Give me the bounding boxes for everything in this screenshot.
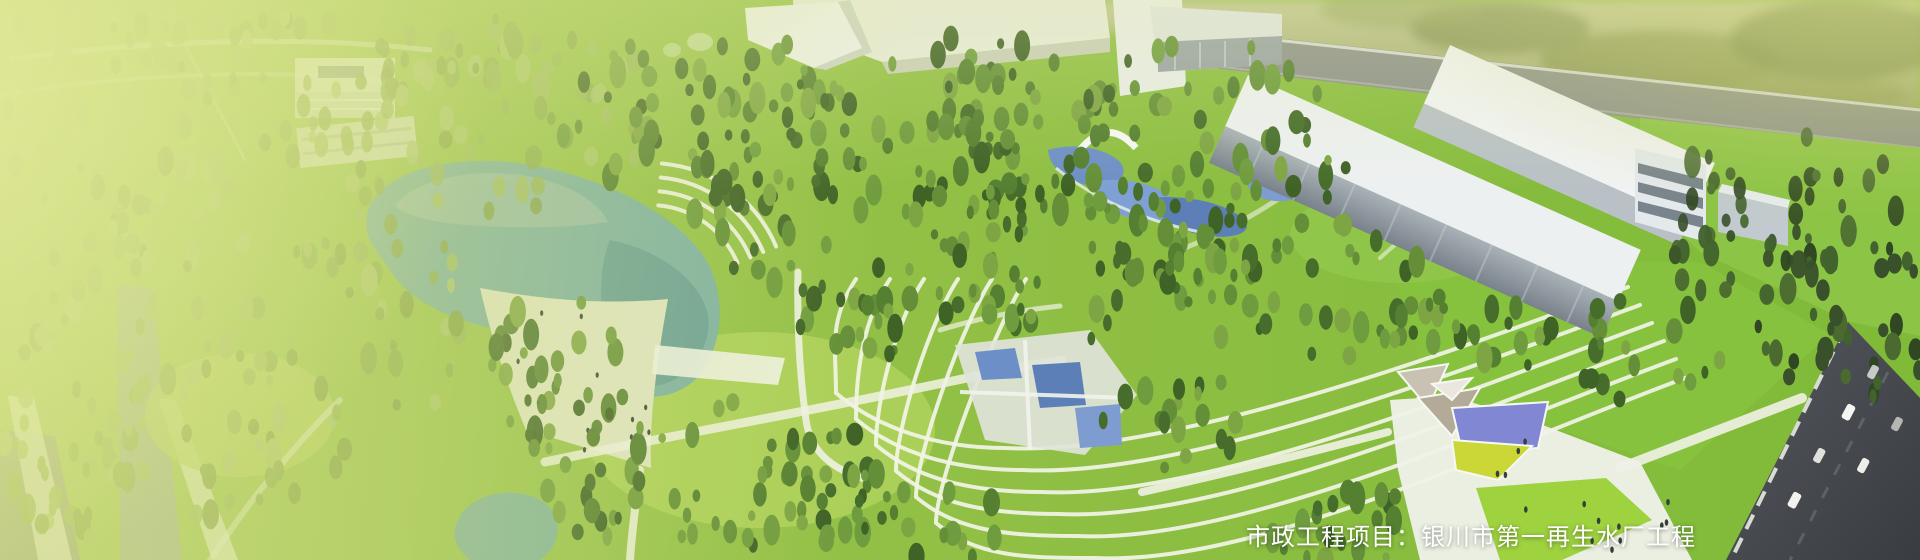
hero-banner: 市政工程项目：银川市第一再生水厂工程 (0, 0, 1920, 560)
project-caption-text: 市政工程项目：银川市第一再生水厂工程 (1246, 517, 1696, 552)
aerial-site-rendering (0, 0, 1920, 560)
